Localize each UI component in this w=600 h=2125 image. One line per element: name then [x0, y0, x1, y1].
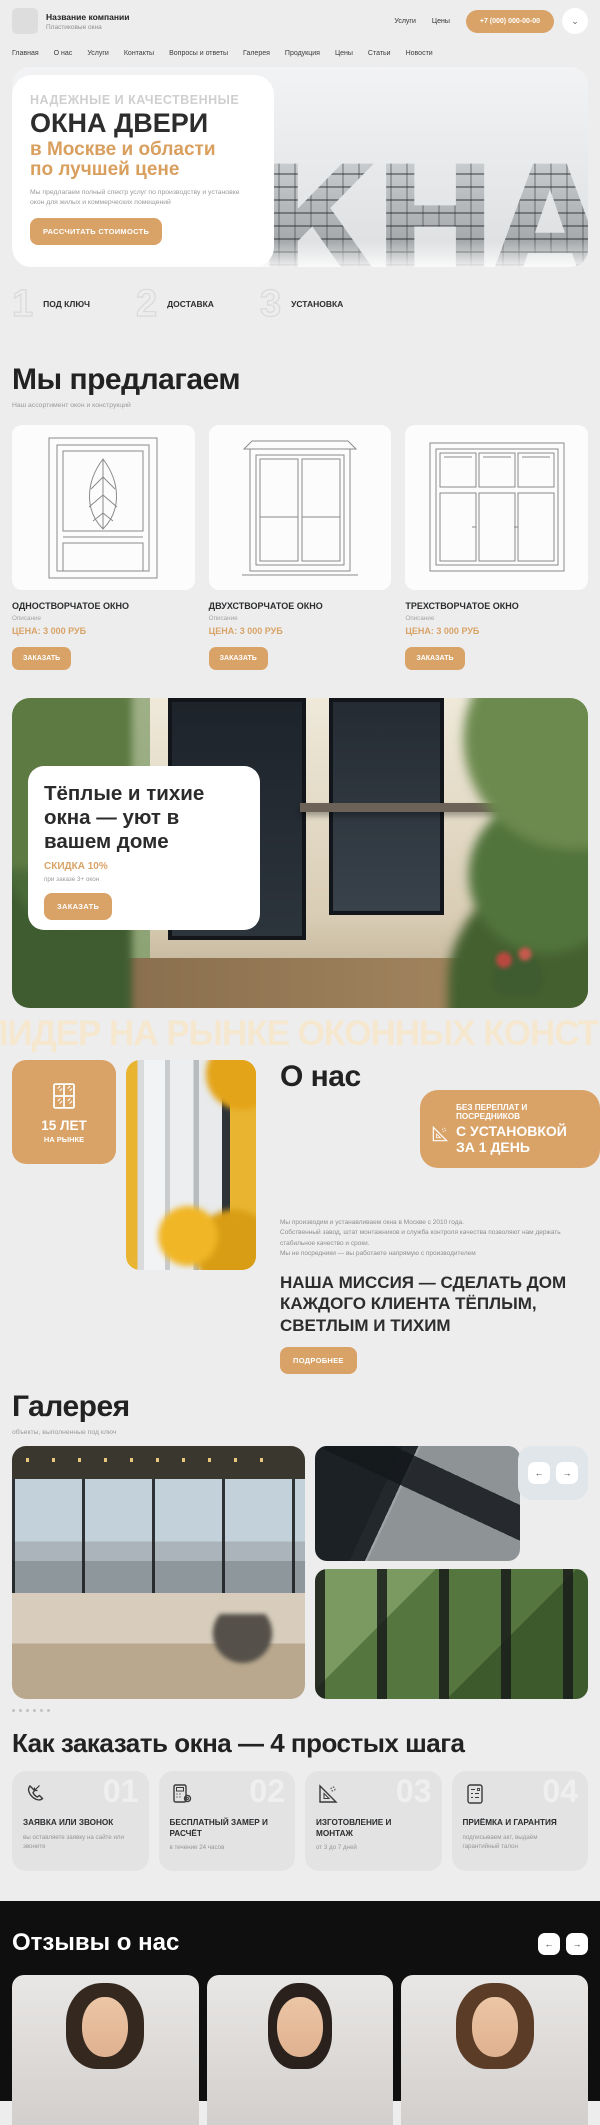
- ceiling-lights: [26, 1458, 286, 1462]
- about-section: 15 ЛЕТ НА РЫНКЕ О нас БЕЗ ПЕРЕПЛАТ И ПОС…: [12, 1060, 588, 1356]
- dot[interactable]: [33, 1709, 36, 1712]
- banner-title-line2: окна — уют в: [44, 806, 244, 830]
- window-icon: [49, 1081, 79, 1111]
- step-label: УСТАНОВКА: [291, 299, 343, 309]
- step-installation: 3 УСТАНОВКА: [260, 285, 343, 323]
- how-header: Как заказать окна — 4 простых шага: [0, 1712, 600, 1759]
- how-step-request: 01 ЗАЯВКА ИЛИ ЗВОНОК вы оставляете заявк…: [12, 1771, 149, 1871]
- order-button[interactable]: ЗАКАЗАТЬ: [12, 647, 71, 670]
- product-grid: ОДНОСТВОРЧАТОЕ ОКНО Описание ЦЕНА: 3 000…: [0, 409, 600, 670]
- hero-subtitle-line2: по лучшей цене: [30, 160, 256, 181]
- reviews-prev-button[interactable]: ←: [538, 1933, 560, 1955]
- steps-strip: 1 ПОД КЛЮЧ 2 ДОСТАВКА 3 УСТАНОВКА: [0, 267, 600, 323]
- years-value: 15 ЛЕТ: [41, 1118, 87, 1133]
- offers-subtitle: Наш ассортимент окон и конструкций: [12, 402, 588, 409]
- hero-card: НАДЕЖНЫЕ И КАЧЕСТВЕННЫЕ ОКНА ДВЕРИ в Мос…: [12, 75, 274, 267]
- calculator-icon: [170, 1782, 194, 1806]
- reviews-section: Отзывы о нас ← →: [0, 1901, 600, 2101]
- dot[interactable]: [19, 1709, 22, 1712]
- banner-title-line1: Тёплые и тихие: [44, 782, 244, 806]
- nav-item-faq[interactable]: Вопросы и ответы: [169, 50, 228, 57]
- header-titles: Название компании Пластиковые окна: [46, 12, 129, 31]
- product-description: Описание: [12, 615, 195, 622]
- hero-title: ОКНА ДВЕРИ: [30, 110, 256, 138]
- product-card-double-sash[interactable]: ДВУХСТВОРЧАТОЕ ОКНО Описание ЦЕНА: 3 000…: [209, 425, 392, 670]
- nav-item-contacts[interactable]: Контакты: [124, 50, 154, 57]
- hero-kicker: НАДЕЖНЫЕ И КАЧЕСТВЕННЫЕ: [30, 93, 256, 107]
- about-paragraph-line3: Мы не посредники — вы работаете напрямую…: [280, 1249, 595, 1259]
- product-name: ДВУХСТВОРЧАТОЕ ОКНО: [209, 601, 392, 611]
- window-drawing-double: [209, 425, 392, 590]
- how-step-desc: подписываем акт, выдаём гарантийный тало…: [463, 1833, 573, 1852]
- promo-banner: Тёплые и тихие окна — уют в вашем доме С…: [12, 698, 588, 1008]
- product-description: Описание: [209, 615, 392, 622]
- years-label: НА РЫНКЕ: [44, 1135, 84, 1144]
- product-description: Описание: [405, 615, 588, 622]
- about-paragraph-line2: Собственный завод, штат монтажников и сл…: [280, 1228, 595, 1249]
- product-price: ЦЕНА: 3 000 РУБ: [405, 626, 588, 636]
- nav-item-gallery[interactable]: Галерея: [243, 50, 270, 57]
- company-logo: [12, 8, 38, 34]
- about-paragraph: Мы производим и устанавливаем окна в Мос…: [280, 1218, 595, 1260]
- step-number: 3: [260, 285, 281, 323]
- calculate-cost-button[interactable]: РАССЧИТАТЬ СТОИМОСТЬ: [30, 218, 162, 245]
- company-name: Название компании: [46, 12, 129, 22]
- how-step-number: 01: [103, 1775, 139, 1807]
- dot[interactable]: [26, 1709, 29, 1712]
- review-photo[interactable]: [12, 1975, 199, 2125]
- how-step-title: БЕСПЛАТНЫЙ ЗАМЕР И РАСЧЁТ: [170, 1818, 275, 1839]
- step-turnkey: 1 ПОД КЛЮЧ: [12, 285, 90, 323]
- hero-subtitle: в Москве и области по лучшей цене: [30, 140, 256, 181]
- product-price: ЦЕНА: 3 000 РУБ: [12, 626, 195, 636]
- nav-item-news[interactable]: Новости: [406, 50, 433, 57]
- how-step-number: 04: [542, 1775, 578, 1807]
- ribbon-line3: ЗА 1 ДЕНЬ: [456, 1139, 590, 1155]
- dot[interactable]: [40, 1709, 43, 1712]
- gallery-arrows: ← →: [518, 1446, 588, 1500]
- gallery-pagination-dots: [0, 1699, 600, 1712]
- banner-card: Тёплые и тихие окна — уют в вашем доме С…: [28, 766, 260, 930]
- product-card-triple-sash[interactable]: ТРЕХСТВОРЧАТОЕ ОКНО Описание ЦЕНА: 3 000…: [405, 425, 588, 670]
- how-step-number: 02: [249, 1775, 285, 1807]
- step-label: ПОД КЛЮЧ: [43, 299, 90, 309]
- how-step-desc: вы оставляете заявку на сайте или звонит…: [23, 1833, 133, 1852]
- gallery-title: Галерея: [12, 1390, 588, 1424]
- dot[interactable]: [47, 1709, 50, 1712]
- nav-item-products[interactable]: Продукция: [285, 50, 320, 57]
- set-square-icon: [316, 1782, 340, 1806]
- nav-item-prices[interactable]: Цены: [335, 50, 353, 57]
- offers-header: Мы предлагаем Наш ассортимент окон и кон…: [0, 323, 600, 409]
- years-on-market-card: 15 ЛЕТ НА РЫНКЕ: [12, 1060, 116, 1164]
- hero-subtitle-line1: в Москве и области: [30, 140, 256, 161]
- ribbon-line2: С УСТАНОВКОЙ: [456, 1123, 590, 1139]
- step-number: 2: [136, 285, 157, 323]
- offers-title: Мы предлагаем: [12, 363, 588, 397]
- order-button[interactable]: ЗАКАЗАТЬ: [209, 647, 268, 670]
- how-step-measure: 02 БЕСПЛАТНЫЙ ЗАМЕР И РАСЧЁТ в течение 2…: [159, 1771, 296, 1871]
- company-tagline: Пластиковые окна: [46, 24, 129, 31]
- mission-statement: НАША МИССИЯ — СДЕЛАТЬ ДОМ КАЖДОГО КЛИЕНТ…: [280, 1272, 585, 1337]
- banner-order-button[interactable]: ЗАКАЗАТЬ: [44, 893, 112, 920]
- how-title: Как заказать окна — 4 простых шага: [12, 1728, 588, 1759]
- product-price: ЦЕНА: 3 000 РУБ: [209, 626, 392, 636]
- about-content: О нас БЕЗ ПЕРЕПЛАТ И ПОСРЕДНИКОВ С УСТАН…: [280, 1060, 600, 1374]
- nav-item-about[interactable]: О нас: [54, 50, 73, 57]
- how-step-title: ЗАЯВКА ИЛИ ЗВОНОК: [23, 1818, 128, 1829]
- review-cards: [12, 1975, 588, 2125]
- installer-photo: [126, 1060, 256, 1270]
- step-number: 1: [12, 285, 33, 323]
- how-step-desc: от 3 до 7 дней: [316, 1843, 426, 1852]
- window-drawing-single: [12, 425, 195, 590]
- discount-condition: при заказе 3+ окон: [44, 876, 244, 883]
- reviews-title: Отзывы о нас: [12, 1929, 588, 1957]
- dot[interactable]: [12, 1709, 15, 1712]
- gallery-slider: ← →: [12, 1446, 588, 1699]
- main-nav: Главная О нас Услуги Контакты Вопросы и …: [0, 34, 600, 57]
- nav-item-services[interactable]: Услуги: [87, 50, 109, 57]
- order-button[interactable]: ЗАКАЗАТЬ: [405, 647, 464, 670]
- gallery-next-button[interactable]: →: [556, 1462, 578, 1484]
- about-title: О нас: [280, 1060, 600, 1094]
- how-step-title: ИЗГОТОВЛЕНИЕ И МОНТАЖ: [316, 1818, 421, 1839]
- header-link-prices[interactable]: Цены: [432, 18, 450, 25]
- header: Название компании Пластиковые окна Услуг…: [0, 0, 600, 34]
- set-square-icon: [430, 1124, 450, 1144]
- chevron-down-icon[interactable]: ⌄: [562, 8, 588, 34]
- step-delivery: 2 ДОСТАВКА: [136, 285, 214, 323]
- product-name: ТРЕХСТВОРЧАТОЕ ОКНО: [405, 601, 588, 611]
- about-paragraph-line1: Мы производим и устанавливаем окна в Мос…: [280, 1218, 595, 1228]
- banner-flowers: [483, 936, 553, 996]
- review-photo[interactable]: [401, 1975, 588, 2125]
- reviews-arrows: ← →: [538, 1933, 588, 1955]
- hero-description: Мы предлагаем полный спектр услуг по про…: [30, 188, 245, 208]
- step-label: ДОСТАВКА: [167, 299, 214, 309]
- more-details-button[interactable]: ПОДРОБНЕЕ: [280, 1347, 357, 1374]
- product-name: ОДНОСТВОРЧАТОЕ ОКНО: [12, 601, 195, 611]
- nav-item-home[interactable]: Главная: [12, 50, 39, 57]
- document-checklist-icon: [463, 1782, 487, 1806]
- marquee-strip: ЛИДЕР НА РЫНКЕ ОКОННЫХ КОНСТРУКЦИЙ: [0, 1012, 600, 1056]
- hero-section: ОКНА НАДЕЖНЫЕ И КАЧЕСТВЕННЫЕ ОКНА ДВЕРИ …: [12, 67, 588, 267]
- banner-title: Тёплые и тихие окна — уют в вашем доме: [44, 782, 244, 853]
- marquee-text: ЛИДЕР НА РЫНКЕ ОКОННЫХ КОНСТРУКЦИЙ: [0, 1012, 600, 1056]
- gallery-subtitle: объекты, выполненные под ключ: [12, 1429, 588, 1436]
- gallery-photo-facade[interactable]: [315, 1446, 520, 1561]
- how-steps: 01 ЗАЯВКА ИЛИ ЗВОНОК вы оставляете заявк…: [0, 1759, 600, 1871]
- phone-call-icon: [23, 1782, 47, 1806]
- window-drawing-triple: [405, 425, 588, 590]
- phone-button[interactable]: +7 (000) 000-00-00: [466, 10, 554, 33]
- review-photo[interactable]: [207, 1975, 394, 2125]
- no-middlemen-ribbon: БЕЗ ПЕРЕПЛАТ И ПОСРЕДНИКОВ С УСТАНОВКОЙ …: [420, 1090, 600, 1168]
- banner-title-line3: вашем доме: [44, 830, 244, 854]
- header-link-services[interactable]: Услуги: [394, 18, 416, 25]
- how-step-desc: в течение 24 часов: [170, 1843, 280, 1852]
- discount-label: СКИДКА 10%: [44, 861, 244, 872]
- gallery-prev-button[interactable]: ←: [528, 1462, 550, 1484]
- reviews-next-button[interactable]: →: [566, 1933, 588, 1955]
- how-step-title: ПРИЁМКА И ГАРАНТИЯ: [463, 1818, 568, 1829]
- gallery-photo-greenery[interactable]: [315, 1569, 588, 1699]
- ribbon-line1: БЕЗ ПЕРЕПЛАТ И ПОСРЕДНИКОВ: [456, 1103, 590, 1121]
- nav-item-articles[interactable]: Статьи: [368, 50, 391, 57]
- how-step-number: 03: [396, 1775, 432, 1807]
- gallery-photo-interior[interactable]: [12, 1446, 305, 1699]
- product-card-single-sash[interactable]: ОДНОСТВОРЧАТОЕ ОКНО Описание ЦЕНА: 3 000…: [12, 425, 195, 670]
- how-step-production: 03 ИЗГОТОВЛЕНИЕ И МОНТАЖ от 3 до 7 дней: [305, 1771, 442, 1871]
- how-step-warranty: 04 ПРИЁМКА И ГАРАНТИЯ подписываем акт, в…: [452, 1771, 589, 1871]
